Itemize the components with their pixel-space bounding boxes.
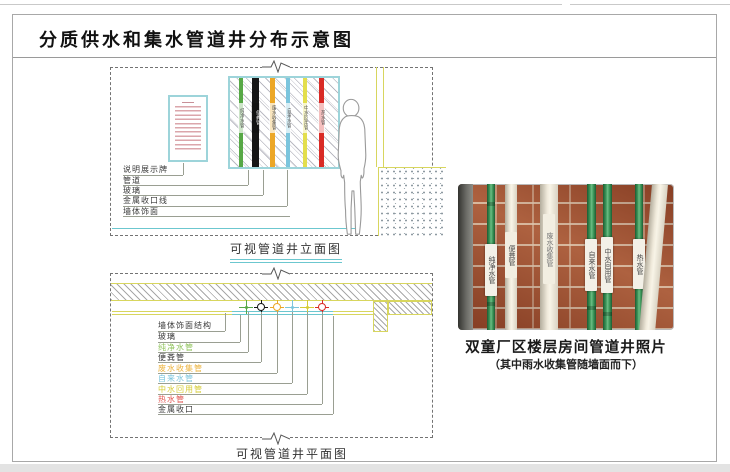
plan-label: 废水收集管	[158, 365, 203, 373]
pipe-joint	[487, 302, 495, 306]
plan-label: 纯净水管	[158, 344, 194, 352]
pipe-hot-water: 热水管	[319, 78, 324, 167]
plan-symbol-pure-water	[241, 302, 251, 312]
break-mark-plan-top	[262, 267, 290, 280]
symbol-ring	[318, 303, 326, 311]
plan-label: 墙体饰面结构	[158, 322, 212, 330]
photo-pipe-label: 中水回用管	[601, 237, 613, 293]
pipe-reclaimed-water: 中水回用管	[303, 78, 307, 167]
photo-pipe-label: 便粪管	[505, 232, 517, 278]
pipe-joint	[487, 202, 495, 206]
pipe-label: 废水收集管	[269, 103, 276, 133]
wall-face-line	[112, 314, 232, 315]
elevation-label: 金属收口线	[123, 197, 168, 205]
concrete-section	[378, 167, 446, 236]
leader-line	[240, 315, 241, 342]
top-hairline-left	[0, 4, 562, 5]
plan-label: 玻璃	[158, 333, 176, 341]
wall-face-line	[333, 314, 373, 315]
wall-line	[383, 67, 384, 167]
schematic-canvas: 分质供水和集水管道井分布示意图 纯净水管 便粪管 废水收集管 自来水管 中水回用…	[0, 0, 730, 472]
board-text-lines	[175, 106, 201, 152]
elevation-label: 说明展示牌	[123, 166, 168, 174]
leader-line	[158, 362, 261, 363]
pipe-toilet-waste: 便粪管	[252, 78, 259, 167]
photo-subcaption: （其中雨水收集管随墙面而下）	[452, 356, 680, 372]
board-title-line	[182, 102, 194, 103]
pipe-label: 纯净水管	[238, 103, 244, 133]
plan-symbol-hot-water	[317, 302, 327, 312]
leader-line	[123, 185, 248, 186]
photo-pipe-label: 纯净水管	[485, 244, 497, 296]
pipe-wastewater-collect: 废水收集管	[270, 78, 275, 167]
leader-line	[277, 312, 278, 373]
plan-label: 金属收口	[158, 406, 194, 414]
break-mark-elevation-top	[262, 60, 290, 73]
pipe-label: 自来水管	[285, 103, 291, 133]
plan-label: 中水回用管	[158, 386, 203, 394]
plan-label: 热水管	[158, 396, 185, 404]
person-silhouette	[328, 98, 376, 236]
bottom-strip	[0, 464, 730, 472]
symbol-dot	[245, 306, 248, 309]
leader-line	[158, 383, 292, 384]
leader-line	[322, 312, 323, 404]
wall-hatch-right	[388, 301, 432, 315]
plan-label: 自来水管	[158, 375, 194, 383]
elevation-caption: 可视管道井立面图	[230, 240, 342, 263]
pipe-label: 中水回用管	[302, 103, 308, 133]
leader-line	[261, 312, 262, 362]
leader-line	[248, 312, 249, 352]
leader-line	[183, 163, 184, 175]
symbol-ring	[257, 303, 265, 311]
photo-caption: 双童厂区楼层房间管道井照片	[452, 336, 680, 357]
pipe-label: 便粪管	[251, 103, 260, 133]
elevation-label: 墙体饰面	[123, 208, 159, 216]
page-title: 分质供水和集水管道井分布示意图	[39, 26, 354, 52]
leader-line	[225, 313, 226, 331]
break-mark-plan-bottom	[262, 432, 290, 445]
wall-hatch-band	[111, 283, 432, 301]
plan-label: 便粪管	[158, 354, 185, 362]
pipe-pure-water: 纯净水管	[239, 78, 243, 167]
photo-pipe-label: 自来水管	[585, 239, 597, 291]
pipe-label: 热水管	[318, 103, 325, 133]
floor-line	[112, 228, 357, 229]
leader-line	[158, 414, 333, 415]
pipe-tap-water: 自来水管	[286, 78, 290, 167]
pipe-well-photo: 纯净水管 便粪管 废水收集管 自来水管 中水回用管 热水管	[458, 184, 674, 330]
explanation-board	[168, 95, 208, 162]
plan-symbol-wastewater	[272, 302, 282, 312]
photo-wall-corner	[458, 184, 473, 330]
wall-face-line	[112, 311, 232, 312]
leader-line	[263, 170, 264, 195]
elevation-label: 玻璃	[123, 187, 141, 195]
plan-symbol-reclaimed	[302, 302, 312, 312]
elevation-label: 管道	[123, 177, 141, 185]
symbol-ring	[273, 303, 281, 311]
leader-line	[307, 312, 308, 394]
wall-face-line	[333, 311, 373, 312]
pipe-joint	[587, 306, 596, 310]
leader-line	[292, 312, 293, 383]
leader-line	[287, 170, 288, 206]
glass-pipe-panel: 纯净水管 便粪管 废水收集管 自来水管 中水回用管 热水管	[228, 76, 340, 169]
pipe-joint	[603, 312, 612, 316]
wall-hatch-pier	[373, 301, 388, 332]
leader-line	[333, 316, 334, 414]
top-hairline-right	[570, 4, 730, 5]
leader-line	[248, 170, 249, 185]
wall-line	[376, 67, 377, 167]
plan-symbol-tap-water	[287, 302, 297, 312]
title-bar: 分质供水和集水管道井分布示意图	[13, 15, 716, 58]
symbol-dot	[306, 306, 309, 309]
plan-symbol-toilet-waste	[256, 302, 266, 312]
leader-line	[123, 216, 290, 217]
symbol-dot	[291, 306, 294, 309]
photo-pipe-label: 废水收集管	[543, 214, 555, 284]
